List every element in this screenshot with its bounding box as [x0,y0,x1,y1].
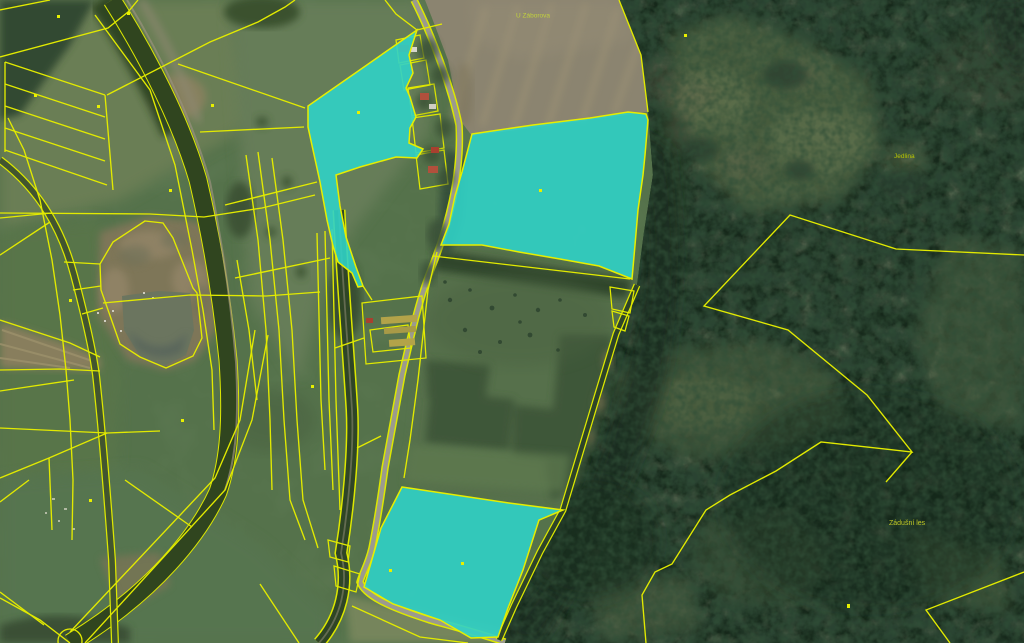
svg-text:U Záborova: U Záborova [516,13,550,20]
svg-text:Zádušní les: Zádušní les [889,520,926,527]
svg-text:Jedlina: Jedlina [894,153,915,160]
